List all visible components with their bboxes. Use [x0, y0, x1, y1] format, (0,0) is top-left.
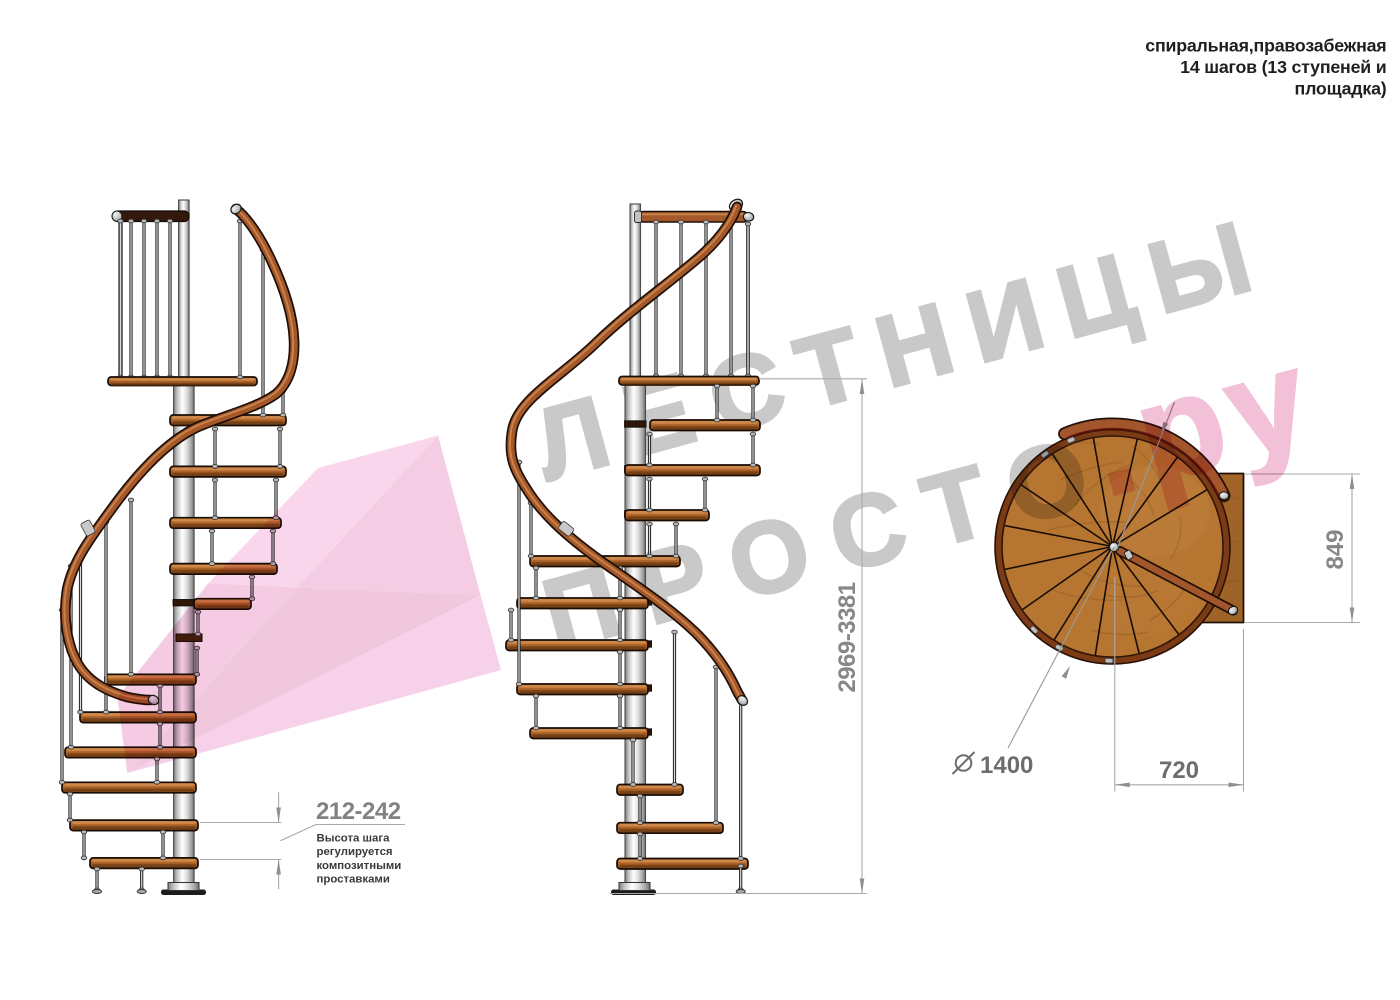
svg-text:849: 849: [1322, 529, 1349, 569]
svg-text:регулируется: регулируется: [317, 846, 393, 858]
svg-text:212-242: 212-242: [316, 798, 401, 825]
svg-text:1400: 1400: [980, 752, 1033, 779]
svg-text:площадка): площадка): [1295, 79, 1387, 99]
svg-text:спиральная,правозабежная: спиральная,правозабежная: [1145, 36, 1386, 56]
svg-text:проставками: проставками: [317, 874, 390, 886]
svg-text:720: 720: [1159, 757, 1199, 784]
svg-text:Высота шага: Высота шага: [317, 833, 391, 845]
svg-text:2969-3381: 2969-3381: [834, 582, 861, 692]
svg-text:14 шагов (13 ступеней и: 14 шагов (13 ступеней и: [1180, 57, 1386, 77]
svg-text:композитными: композитными: [317, 860, 402, 872]
